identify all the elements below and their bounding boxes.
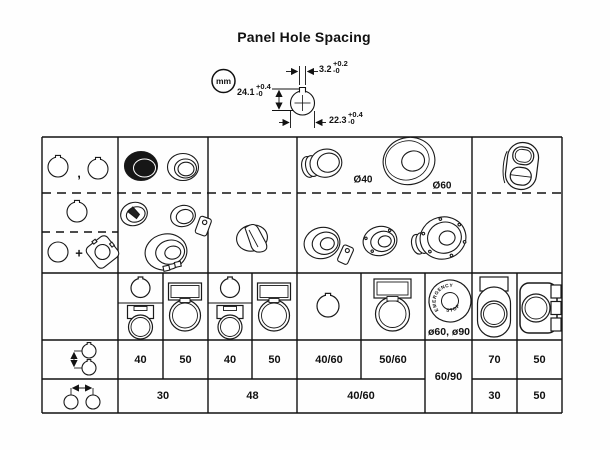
label-frame-tall-1 <box>169 283 202 331</box>
keylock-switches-drawing <box>118 199 216 275</box>
spacing-value-h3: 40/60 <box>347 390 375 402</box>
panel-hole-spacing-page: EMERGENCY STOP Panel Hole Spacing mm 3.2… <box>0 0 610 450</box>
estop-sizes-label: ø60, ø90 <box>428 326 470 338</box>
spacing-value-v6: 50/60 <box>379 354 407 366</box>
selector-body <box>142 230 191 274</box>
emergency-stop-drawing: EMERGENCY STOP <box>422 273 478 329</box>
label-frame-wide <box>374 279 411 331</box>
dim-diameter: 22.3 +0.4 -0 <box>329 111 363 125</box>
dimension-lines <box>272 66 326 128</box>
vertical-spacing-symbol <box>74 343 96 375</box>
dim-total-height: 24.1 +0.4 -0 <box>237 83 271 97</box>
spacing-value-v4: 50 <box>268 354 280 366</box>
label-frame-small-1 <box>128 306 154 340</box>
dim-tol-minus: -0 <box>348 118 363 125</box>
spacing-value-merged: 60/90 <box>435 371 463 383</box>
keylock-selector <box>301 221 358 274</box>
dim-notch-width: 3.2 +0.2 -0 <box>319 60 348 74</box>
dim-value: 3.2 <box>319 65 332 74</box>
selector-devices-drawing <box>301 212 471 274</box>
dim-value: 24.1 <box>237 88 255 97</box>
plus-symbol: + <box>75 246 83 261</box>
contact-block-device <box>520 283 561 333</box>
label-mount-row: EMERGENCY STOP <box>128 273 562 339</box>
line-art-canvas: EMERGENCY STOP <box>0 0 610 450</box>
horizontal-spacing-symbol <box>64 388 100 409</box>
knob-selector-drawing <box>234 222 270 254</box>
label-frame-small-2 <box>217 306 243 340</box>
spacing-value-h1: 30 <box>157 390 169 402</box>
hole-symbol-single <box>67 200 87 222</box>
double-pushbutton-drawing <box>501 140 541 191</box>
unit-badge: mm <box>216 76 231 86</box>
hole-plus-plate-symbol <box>48 232 121 270</box>
spacing-value-v3: 40 <box>224 354 236 366</box>
stadium-label-frame <box>478 277 511 337</box>
crosshair <box>295 95 311 111</box>
dim-tol-minus: -0 <box>256 90 271 97</box>
mushroom-60-label: Ø60 <box>433 181 452 192</box>
spacing-value-v7: 70 <box>488 354 500 366</box>
keylock-1 <box>118 199 151 229</box>
round-selector <box>360 223 400 259</box>
mushroom-40-label: Ø40 <box>354 175 373 186</box>
label-frame-tall-2 <box>258 283 291 331</box>
spacing-value-h2: 48 <box>246 390 258 402</box>
spacing-value-h4: 30 <box>488 390 500 402</box>
flush-mount-device <box>407 212 471 266</box>
page-title: Panel Hole Spacing <box>237 29 371 45</box>
mushroom-60 <box>378 132 440 190</box>
mushroom-40 <box>299 146 344 182</box>
spacing-value-v1: 40 <box>134 354 146 366</box>
comma-symbol: , <box>77 166 81 181</box>
spacing-value-v2: 50 <box>179 354 191 366</box>
spacing-value-v8: 50 <box>533 354 545 366</box>
dim-tol-minus: -0 <box>333 67 348 74</box>
hole-notch <box>300 88 306 93</box>
spacing-value-h5: 50 <box>533 390 545 402</box>
table-grid <box>42 137 562 413</box>
pushbuttons-drawing <box>125 152 199 181</box>
dim-value: 22.3 <box>329 116 347 125</box>
spacing-value-v5: 40/60 <box>315 354 343 366</box>
